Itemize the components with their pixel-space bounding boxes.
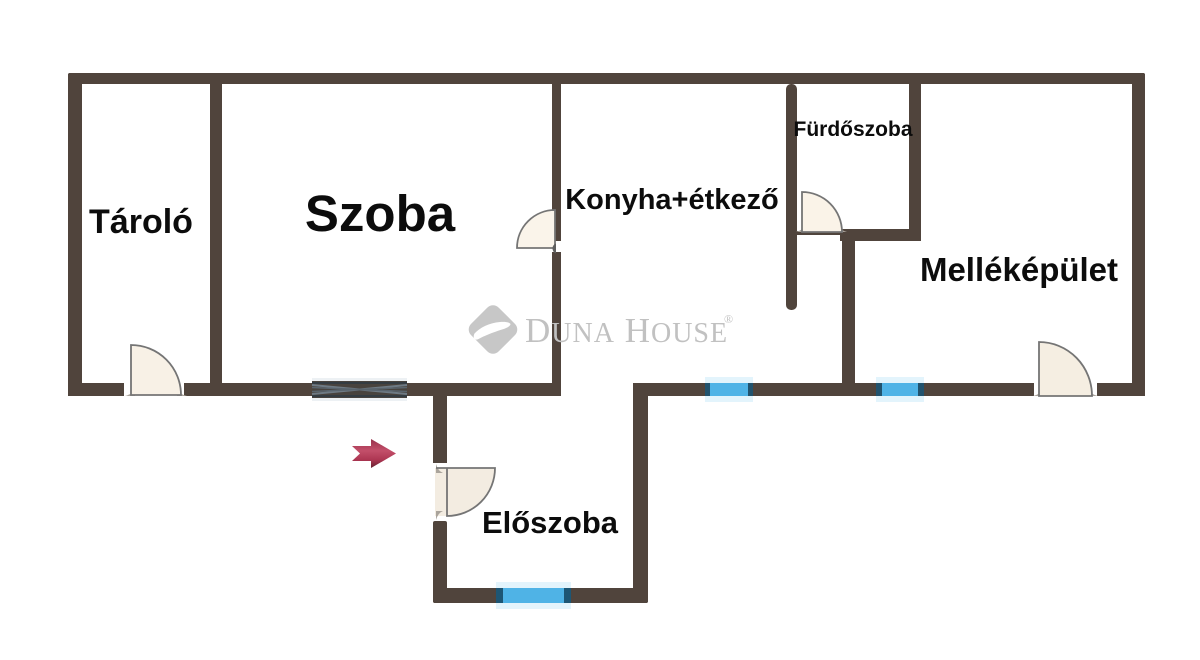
svg-text:Előszoba: Előszoba	[482, 505, 619, 540]
svg-text:Tároló: Tároló	[89, 203, 193, 241]
svg-text:Szoba: Szoba	[305, 185, 456, 242]
svg-text:Konyha+étkező: Konyha+étkező	[565, 184, 779, 216]
svg-text:®: ®	[724, 312, 733, 326]
svg-text:Fürdőszoba: Fürdőszoba	[794, 118, 913, 141]
svg-text:Melléképület: Melléképület	[920, 251, 1118, 288]
